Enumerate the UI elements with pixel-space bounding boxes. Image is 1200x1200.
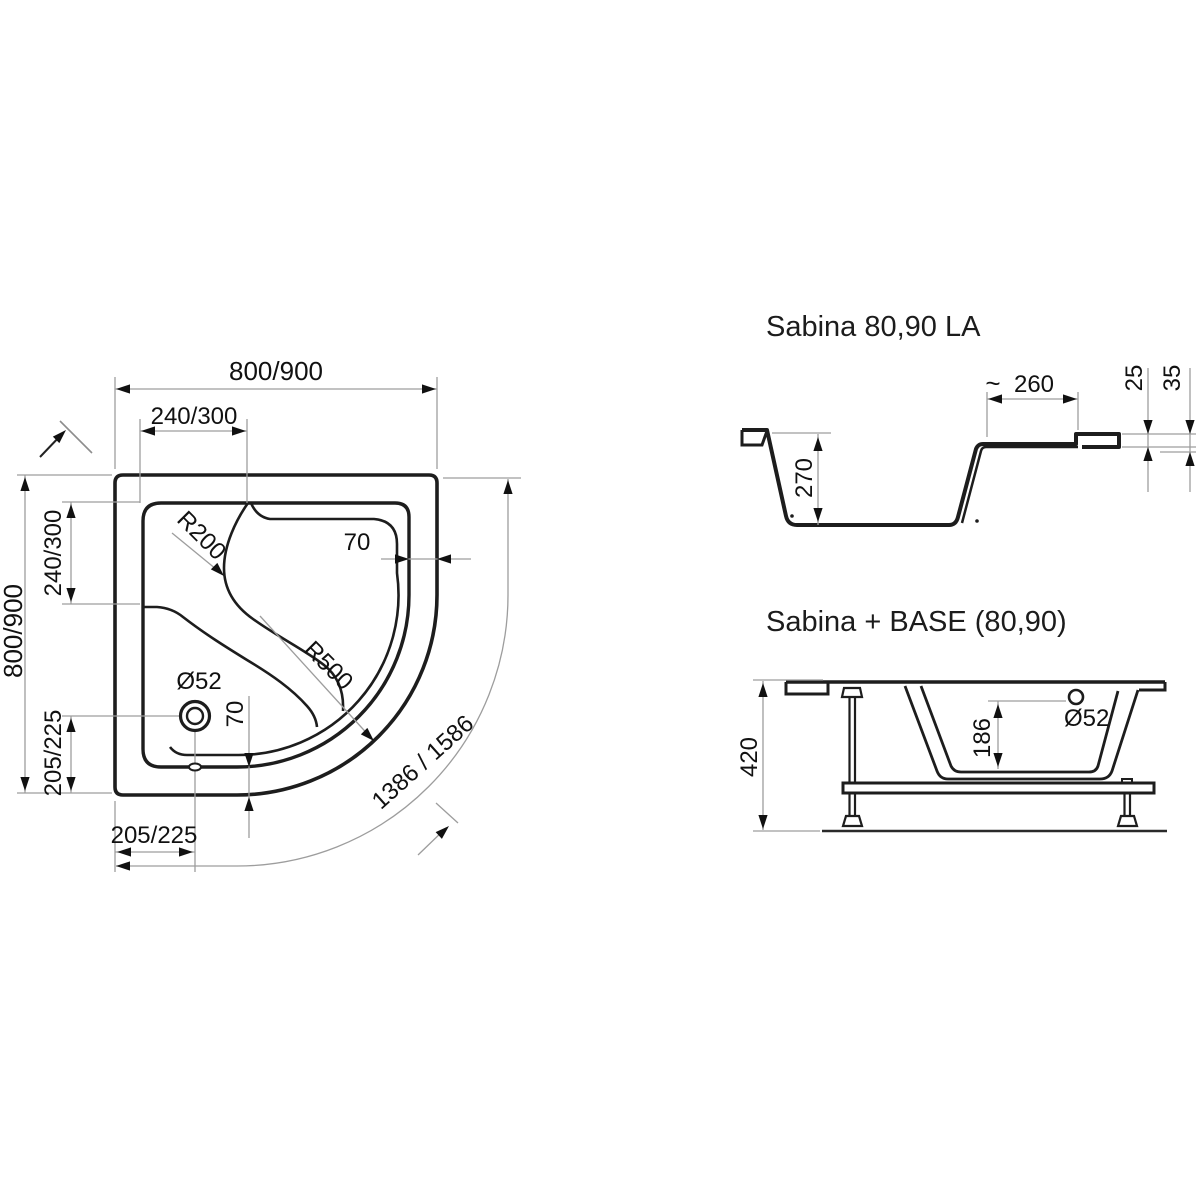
base-drain-hole (1069, 690, 1083, 704)
slope-direction-icon (40, 421, 92, 457)
technical-drawing-page: 800/900 240/300 800/900 240/300 205/225 … (0, 0, 1200, 1200)
label-front-radius: R500 (298, 636, 358, 696)
frame-left-leg-bracket (842, 688, 862, 697)
frame-plank (843, 783, 1154, 793)
drain-hole-inner (187, 708, 203, 724)
frame-left-foot (843, 816, 862, 826)
label-drain-offset-left: 205/225 (40, 710, 67, 797)
label-height-left: 800/900 (0, 584, 28, 678)
frame-right-foot (1118, 816, 1137, 826)
label-arc-length: 1386 / 1586 (367, 710, 479, 815)
base-view-title: Sabina + BASE (80,90) (766, 606, 1067, 638)
profile-view-title: Sabina 80,90 LA (766, 311, 981, 343)
label-seat-width-top: 240/300 (151, 403, 238, 430)
label-rim-width-right: 70 (344, 529, 371, 556)
frame-left-leg-upper (850, 697, 856, 783)
base-tray-outer-surface (905, 686, 1138, 779)
label-edge-height: 35 (1159, 365, 1186, 392)
frame-right-leg (1125, 793, 1131, 816)
label-lip-height: 25 (1121, 365, 1148, 392)
top-view-drawing: 800/900 240/300 800/900 240/300 205/225 … (0, 356, 521, 872)
profile-rim-end (742, 430, 767, 445)
label-drain-diameter: Ø52 (176, 668, 221, 695)
label-width-top: 800/900 (229, 356, 323, 386)
label-seat-height-left: 240/300 (40, 510, 67, 597)
rim-notch (189, 764, 201, 771)
label-total-height: 420 (736, 737, 763, 777)
profile-view-drawing: Sabina 80,90 LA 270 ~ 260 25 35 (742, 311, 1196, 525)
label-drain-offset-bottom: 205/225 (111, 822, 198, 849)
label-depth: 270 (791, 458, 818, 498)
label-inner-depth: 186 (969, 718, 996, 758)
frame-left-leg-lower (850, 793, 856, 816)
label-base-drain-diameter: Ø52 (1064, 705, 1109, 732)
profile-ledge-underside (962, 447, 1078, 523)
label-ledge-width: 260 (1014, 371, 1054, 398)
label-rim-width-bottom: 70 (222, 701, 249, 728)
base-view-drawing: Sabina + BASE (80,90) 420 Ø52 186 (736, 606, 1167, 831)
label-approx-sign: ~ (985, 368, 1000, 398)
